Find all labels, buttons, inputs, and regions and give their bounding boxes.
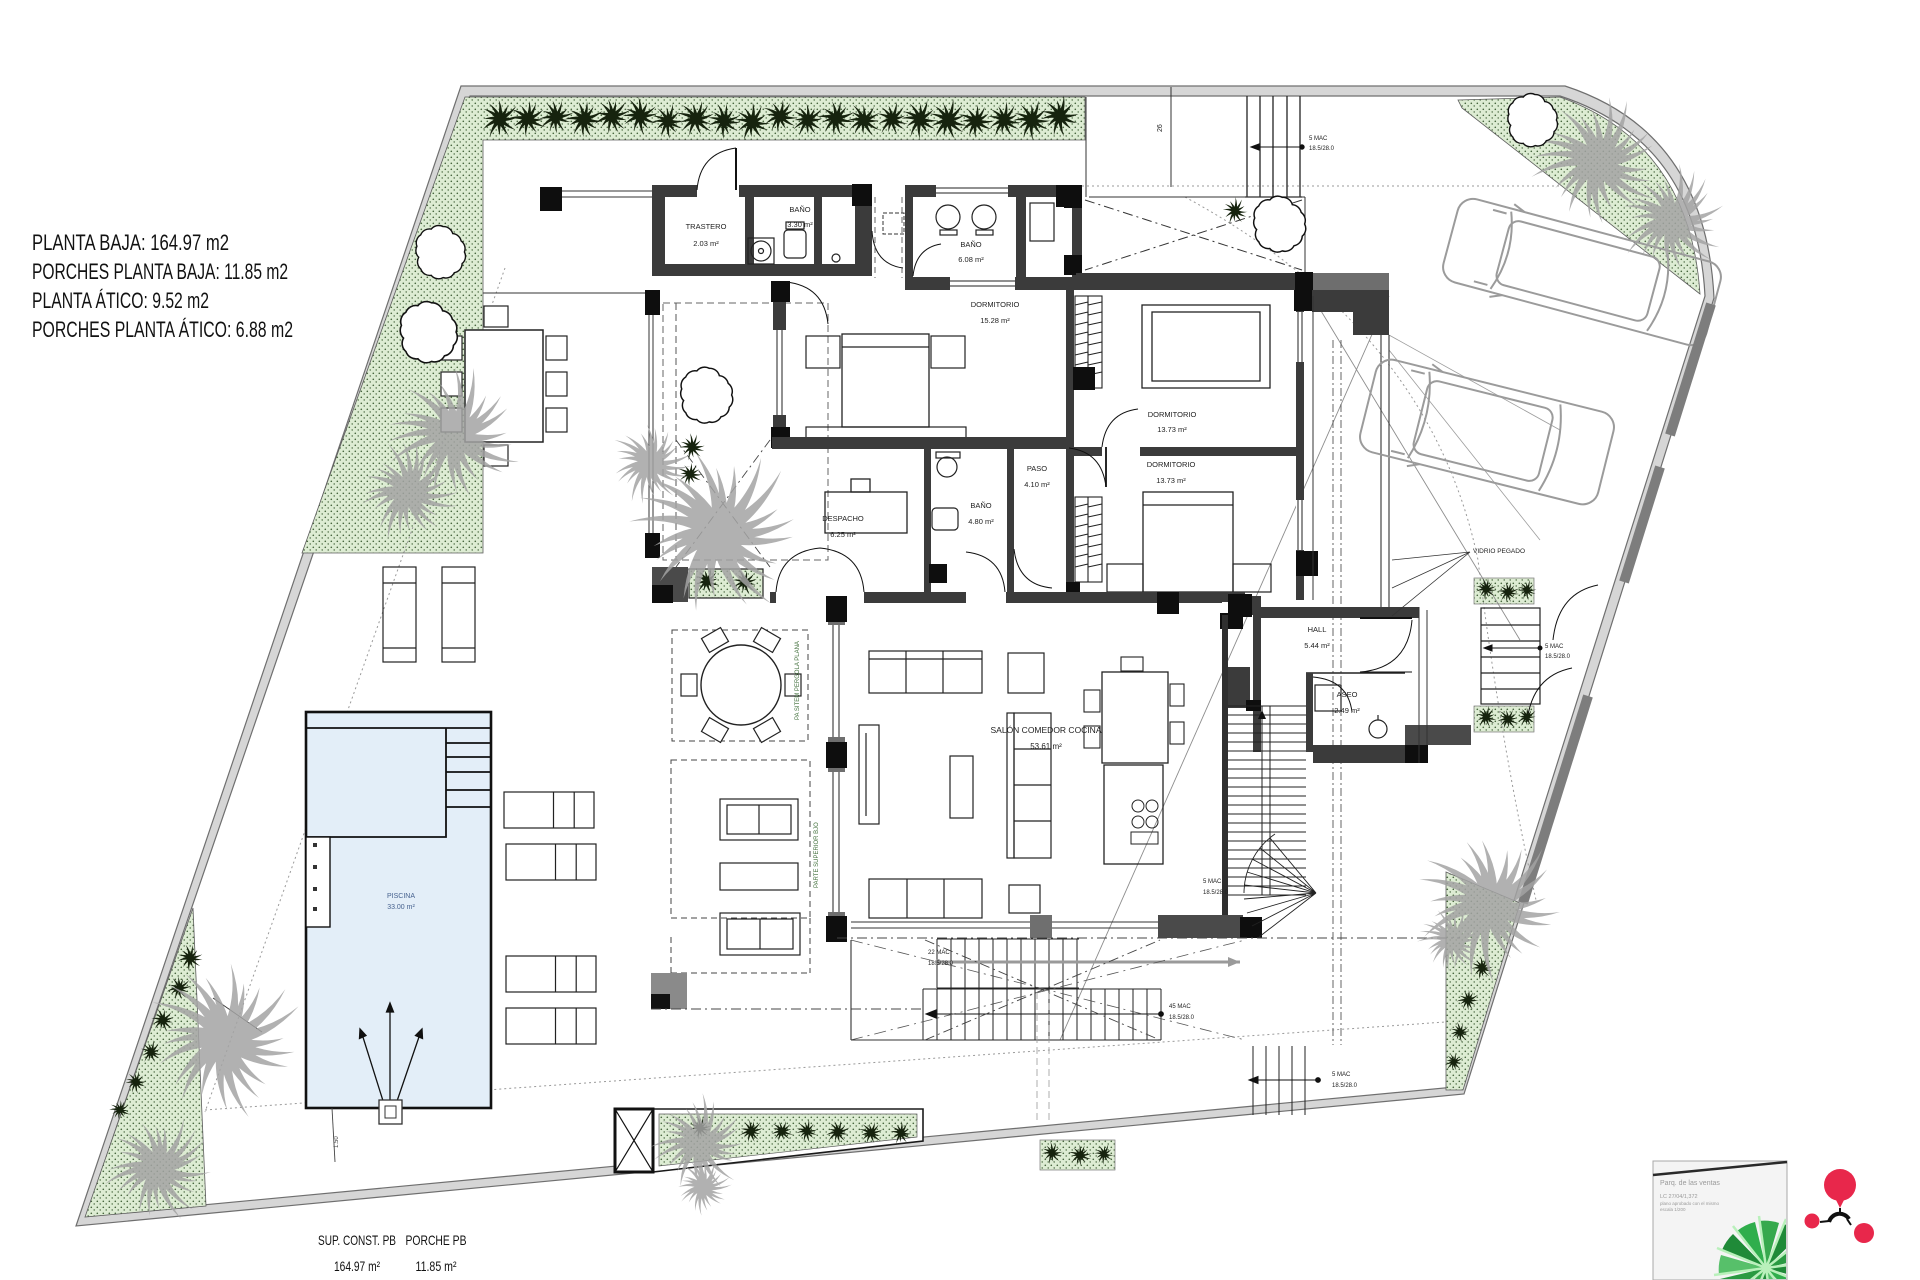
svg-text:PASO: PASO (1027, 464, 1047, 473)
svg-text:3.30 m²: 3.30 m² (787, 220, 813, 229)
svg-text:18.5/28.0: 18.5/28.0 (1203, 890, 1229, 896)
svg-text:ASEO: ASEO (1337, 690, 1358, 699)
svg-text:11.85 m²: 11.85 m² (416, 1258, 457, 1274)
svg-text:15.28 m²: 15.28 m² (980, 316, 1010, 325)
svg-text:13.73 m²: 13.73 m² (1156, 476, 1186, 485)
svg-text:BAÑO: BAÑO (960, 240, 981, 249)
svg-text:TRASTERO: TRASTERO (686, 222, 727, 231)
svg-text:4.10 m²: 4.10 m² (1024, 480, 1050, 489)
svg-text:BAÑO: BAÑO (970, 501, 991, 510)
svg-text:2.03 m²: 2.03 m² (693, 239, 719, 248)
svg-text:33.00 m²: 33.00 m² (387, 904, 415, 911)
svg-text:18.5/28.0: 18.5/28.0 (1309, 146, 1335, 152)
svg-text:53.61 m²: 53.61 m² (1030, 742, 1062, 751)
svg-text:plano aprobado con el mismo: plano aprobado con el mismo (1660, 1201, 1720, 1206)
svg-text:5 MAC: 5 MAC (1203, 879, 1222, 885)
svg-text:DORMITORIO: DORMITORIO (971, 300, 1020, 309)
svg-text:PLANTA BAJA: 164.97 m2: PLANTA BAJA: 164.97 m2 (32, 230, 229, 255)
svg-text:DESPACHO: DESPACHO (822, 514, 864, 523)
svg-text:PORCHES PLANTA BAJA: 11.85 m2: PORCHES PLANTA BAJA: 11.85 m2 (32, 259, 288, 284)
svg-text:SUP. CONST. PB: SUP. CONST. PB (318, 1232, 396, 1248)
svg-text:5.44 m²: 5.44 m² (1304, 641, 1330, 650)
svg-text:PORCHE PB: PORCHE PB (406, 1232, 467, 1248)
svg-text:PARTE SUPERIOR BJO: PARTE SUPERIOR BJO (814, 822, 820, 888)
svg-text:2.49 m²: 2.49 m² (1334, 706, 1360, 715)
svg-text:26: 26 (1157, 124, 1164, 132)
svg-text:6.08 m²: 6.08 m² (958, 255, 984, 264)
svg-text:45 MAC: 45 MAC (1169, 1004, 1191, 1010)
svg-text:18.5/28.0: 18.5/28.0 (1545, 654, 1571, 660)
svg-text:PLANTA ÁTICO: 9.52 m2: PLANTA ÁTICO: 9.52 m2 (32, 288, 209, 313)
svg-text:5 MAC: 5 MAC (1332, 1072, 1351, 1078)
svg-text:SALÓN COMEDOR COCINA: SALÓN COMEDOR COCINA (991, 725, 1102, 735)
svg-text:6.25 m²: 6.25 m² (830, 530, 856, 539)
svg-text:5 MAC: 5 MAC (1309, 136, 1328, 142)
svg-text:PORCHES PLANTA ÁTICO: 6.88 m2: PORCHES PLANTA ÁTICO: 6.88 m2 (32, 317, 293, 342)
svg-text:HALL: HALL (1308, 625, 1327, 634)
svg-text:13.73 m²: 13.73 m² (1157, 425, 1187, 434)
svg-text:18.5/28.0: 18.5/28.0 (928, 961, 954, 967)
svg-text:5 MAC: 5 MAC (1545, 644, 1564, 650)
svg-text:1.50: 1.50 (334, 1136, 340, 1148)
svg-text:164.97 m²: 164.97 m² (334, 1258, 380, 1274)
svg-text:DORMITORIO: DORMITORIO (1147, 460, 1196, 469)
svg-text:PA SITEM PERGOLA PLANA: PA SITEM PERGOLA PLANA (795, 641, 801, 720)
svg-text:4.80 m²: 4.80 m² (968, 517, 994, 526)
svg-text:Parq. de las ventas: Parq. de las ventas (1660, 1180, 1720, 1187)
svg-text:DORMITORIO: DORMITORIO (1148, 410, 1197, 419)
svg-text:18.5/28.0: 18.5/28.0 (1332, 1083, 1358, 1089)
svg-text:18.5/28.0: 18.5/28.0 (1169, 1015, 1195, 1021)
svg-text:escala 1/200: escala 1/200 (1660, 1207, 1686, 1212)
svg-text:PISCINA: PISCINA (387, 893, 415, 900)
svg-text:22 MAC: 22 MAC (928, 950, 950, 956)
svg-text:LC 27/04/1,372: LC 27/04/1,372 (1660, 1194, 1698, 1200)
svg-text:BAÑO: BAÑO (789, 205, 810, 214)
svg-text:VIDRIO PEGADO: VIDRIO PEGADO (1473, 548, 1525, 555)
